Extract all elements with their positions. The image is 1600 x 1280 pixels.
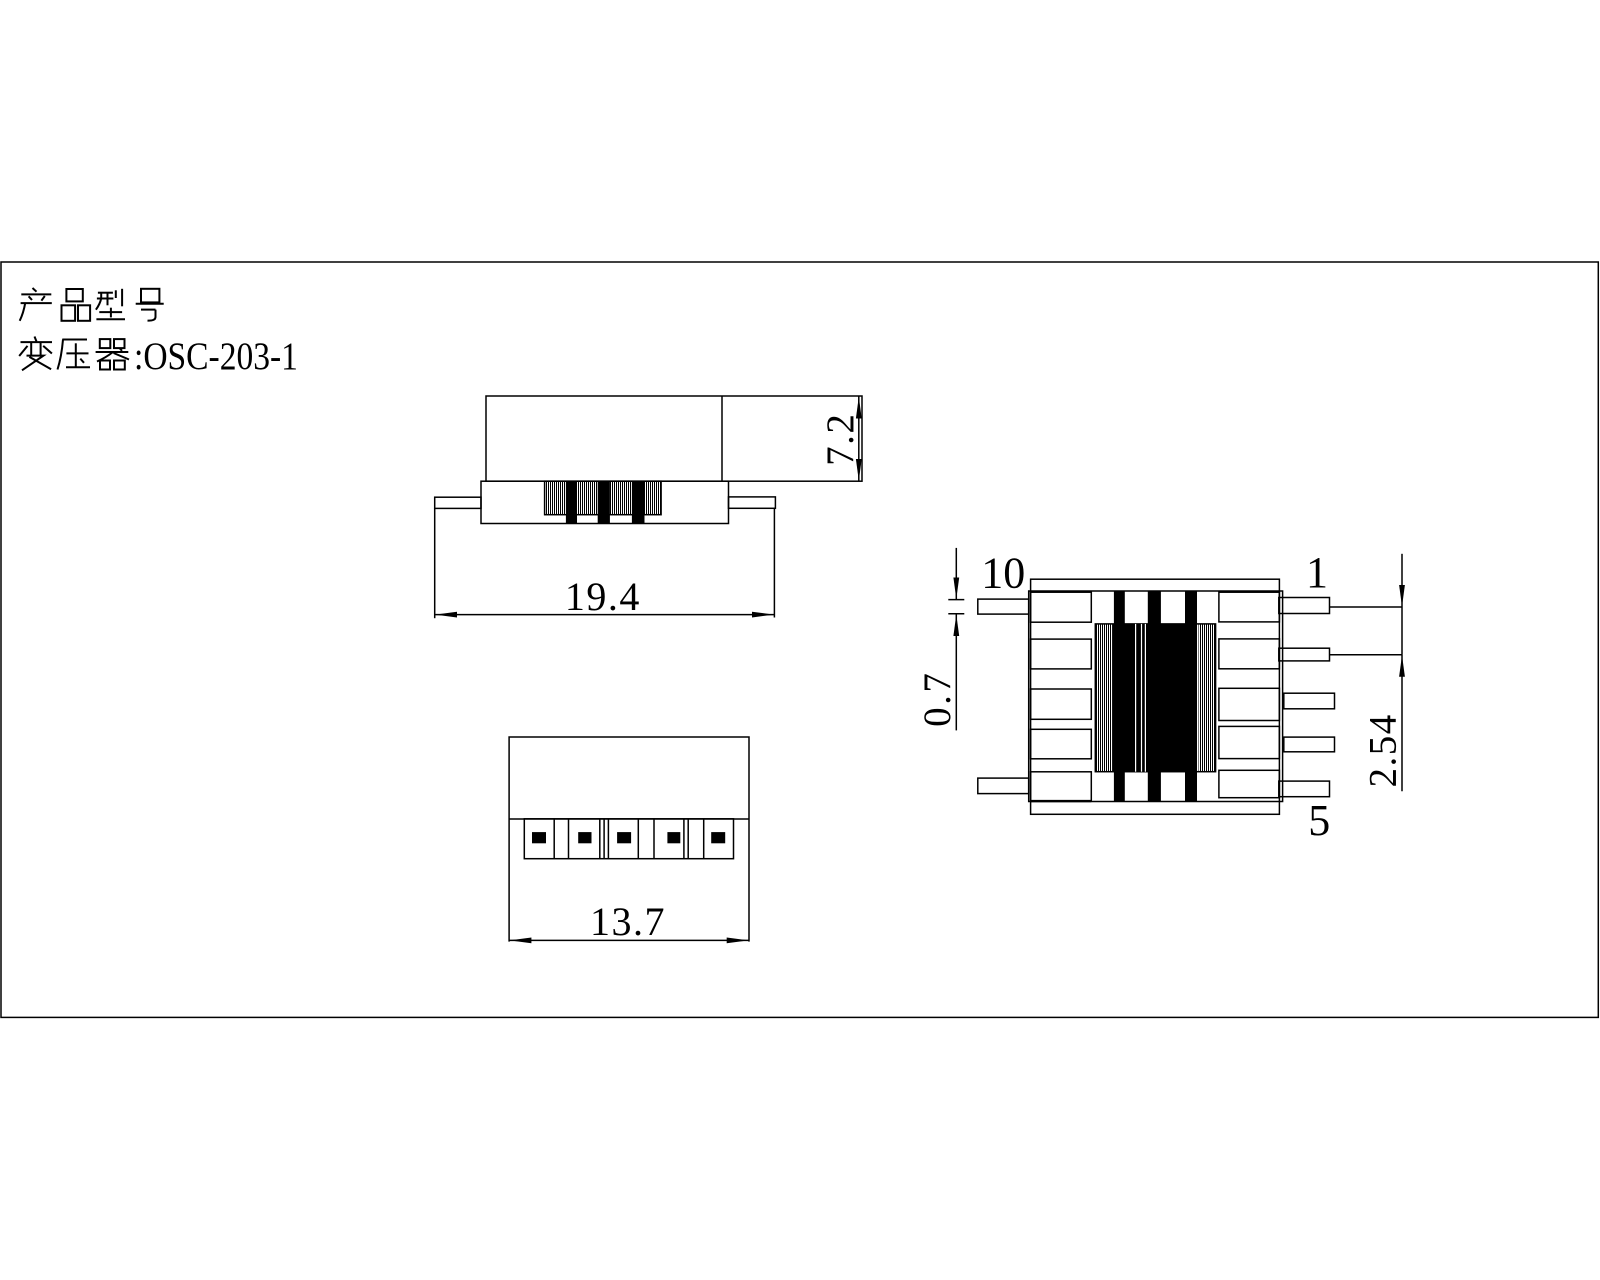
svg-text:1: 1 xyxy=(1306,548,1328,597)
svg-text:2.54: 2.54 xyxy=(1361,713,1404,787)
svg-text::OSC-203-1: :OSC-203-1 xyxy=(134,335,298,378)
svg-text:13.7: 13.7 xyxy=(590,899,666,944)
svg-text:7.2: 7.2 xyxy=(819,413,862,466)
svg-text:10: 10 xyxy=(981,549,1025,598)
svg-text:5: 5 xyxy=(1308,796,1330,845)
svg-text:0.7: 0.7 xyxy=(916,671,959,727)
svg-text:19.4: 19.4 xyxy=(565,574,641,619)
